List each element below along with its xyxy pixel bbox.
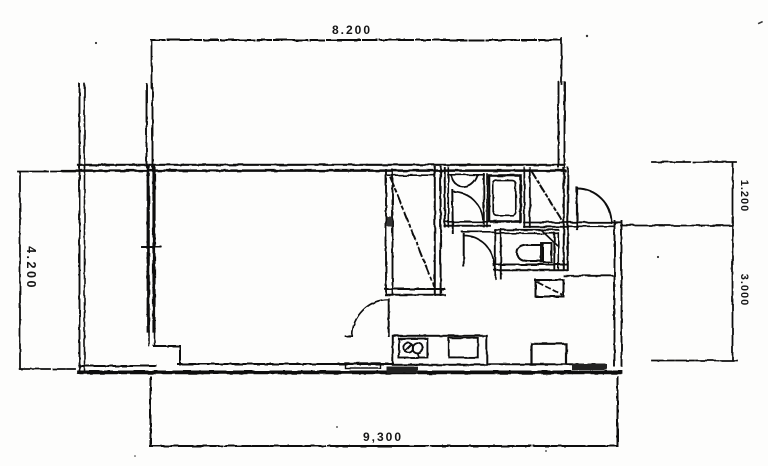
svg-text:4.200: 4.200 <box>24 246 38 290</box>
svg-text:9,300: 9,300 <box>363 430 403 444</box>
svg-text:8.200: 8.200 <box>332 23 372 37</box>
svg-text:3.000: 3.000 <box>738 274 750 307</box>
svg-text:1.200: 1.200 <box>738 180 750 213</box>
